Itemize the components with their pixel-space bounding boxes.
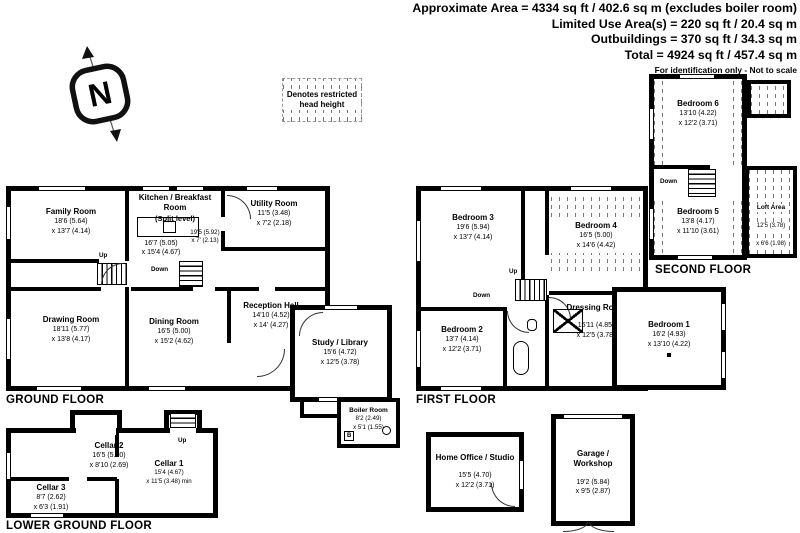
room-bedroom-4: Bedroom 4 16'5 (5.00) x 14'6 (4.42) [551, 221, 641, 250]
wall-segment [11, 287, 101, 291]
room-name: Family Room [21, 207, 121, 217]
door-arc [299, 312, 323, 336]
wall-segment [421, 307, 505, 311]
home-office-plan: Home Office / Studio 15'5 (4.70) x 12'2 … [426, 432, 524, 512]
restricted-height-hatch [551, 253, 641, 271]
restricted-height-hatch [551, 193, 641, 217]
total-area-text: Total = 4924 sq ft / 457.4 sq m [412, 48, 797, 64]
room-dim-1: 19'5 (5.92) [179, 229, 231, 237]
limited-use-area-text: Limited Use Area(s) = 220 sq ft / 20.4 s… [412, 17, 797, 33]
area-summary: Approximate Area = 4334 sq ft / 402.6 sq… [412, 1, 797, 75]
garage-door-arc [589, 522, 614, 532]
room-dim-1: 18'11 (5.77) [21, 325, 121, 334]
room-dim-1: 13'7 (4.14) [423, 335, 501, 344]
room-dim-2: x 14'6 (4.42) [551, 241, 641, 250]
room-dim-2: x 12'2 (3.71) [433, 481, 517, 490]
staircase [688, 169, 716, 197]
window-symbol [678, 255, 712, 260]
wall-join [170, 428, 196, 435]
window-symbol [680, 74, 714, 79]
window-symbol [441, 186, 481, 191]
boiler-tag: B [344, 431, 354, 441]
room-utility: Utility Room 11'5 (3.48) x 7'2 (2.18) [227, 199, 321, 228]
window-symbol [39, 186, 85, 191]
room-dim-1: 15'5 (4.70) [433, 471, 517, 480]
room-name: Cellar 3 [11, 483, 91, 493]
room-home-office-studio: Home Office / Studio 15'5 (4.70) x 12'2 … [433, 453, 517, 490]
room-name: Cellar 2 [63, 441, 155, 451]
window-symbol [6, 207, 11, 239]
room-dim-1: 8'7 (2.62) [11, 493, 91, 502]
room-bedroom-2: Bedroom 2 13'7 (4.14) x 12'2 (3.71) [423, 325, 501, 354]
window-symbol [519, 461, 524, 489]
stairs-down-label: Down [151, 267, 168, 273]
room-dim-2: x 7'2 (2.18) [227, 219, 321, 228]
loft-area-plan: Loft Area 12'5 (3.78) x 6'6 (1.98) [745, 166, 797, 258]
room-name: Utility Room [227, 199, 321, 209]
room-dim-2: x 13'7 (4.14) [427, 233, 519, 242]
room-family-room: Family Room 18'6 (5.64) x 13'7 (4.14) [21, 207, 121, 236]
room-drawing-room: Drawing Room 18'11 (5.77) x 13'8 (4.17) [21, 315, 121, 344]
ground-floor-label: GROUND FLOOR [6, 394, 104, 406]
window-symbol [416, 221, 421, 261]
room-name: Bedroom 6 [656, 99, 740, 109]
second-floor-label: SECOND FLOOR [655, 264, 751, 276]
study-library-plan: Study / Library 15'6 (4.72) x 12'5 (3.78… [290, 305, 392, 402]
restricted-loft-stub [747, 80, 791, 118]
wall-segment [87, 477, 117, 481]
window-symbol [31, 513, 63, 518]
compass-north-icon: N [58, 44, 142, 144]
kitchen-hob [163, 221, 176, 233]
room-loft-area: Loft Area 12'5 (3.78) x 6'6 (1.98) [749, 196, 793, 250]
room-dim-1: 11'5 (3.48) [227, 209, 321, 218]
approximate-area-text: Approximate Area = 4334 sq ft / 402.6 sq… [412, 1, 797, 17]
staircase [515, 279, 547, 301]
window-symbol [6, 319, 11, 359]
room-dim-2: x 13'10 (4.22) [623, 340, 715, 349]
bedroom1-plan: Bedroom 1 16'2 (4.93) x 13'10 (4.22) [612, 287, 726, 390]
ground-floor-plan: Up Down Family Room 18'6 (5.64) x 13'7 (… [6, 186, 330, 391]
window-symbol [143, 186, 169, 191]
room-name-line1: Garage / [558, 449, 628, 459]
room-dim-2: x 11'5 (3.48) min [127, 478, 211, 486]
room-dim-2: x 11'10 (3.61) [656, 227, 740, 236]
garage-workshop-plan: Garage / Workshop 19'2 (5.84) x 9'5 (2.8… [551, 414, 635, 526]
wall-segment [11, 477, 69, 481]
window-symbol [571, 186, 611, 191]
room-subname: (Split level) [127, 214, 223, 223]
room-dim-1: 18'6 (5.64) [21, 217, 121, 226]
room-name: Home Office / Studio [433, 453, 517, 463]
room-name: Boiler Room [341, 407, 396, 415]
room-name-line2: Workshop [558, 459, 628, 469]
boiler-circle-icon [382, 426, 391, 435]
spacer [558, 470, 628, 478]
stairs-down-label: Down [660, 179, 677, 185]
wall-segment [275, 287, 325, 291]
room-study-library: Study / Library 15'6 (4.72) x 12'5 (3.78… [297, 338, 383, 367]
wall-segment [503, 307, 507, 386]
bathtub [513, 341, 529, 375]
room-name: Cellar 1 [127, 459, 211, 469]
window-symbol [247, 186, 277, 191]
room-name: Bedroom 3 [427, 213, 519, 223]
room-dim-2: x 12'2 (3.71) [656, 119, 740, 128]
wall-segment [521, 191, 525, 279]
room-dim-1: 19'2 (5.84) [558, 478, 628, 487]
stairs-up-label: Up [178, 438, 186, 444]
garage-door-arc [563, 522, 588, 532]
staircase [179, 261, 203, 287]
room-cellar-1: Cellar 1 15'4 (4.67) x 11'5 (3.48) min [127, 459, 211, 486]
rear-hall-dims: 19'5 (5.92) x 7' (2.13) [179, 229, 231, 246]
room-dim-1: 15'4 (4.67) [127, 469, 211, 477]
room-name: Bedroom 2 [423, 325, 501, 335]
window-symbol [6, 453, 11, 479]
door-arc [257, 349, 285, 377]
window-symbol [649, 209, 654, 239]
room-dim-2: x 15'4 (4.67) [123, 248, 199, 257]
room-garage-workshop: Garage / Workshop 19'2 (5.84) x 9'5 (2.8… [558, 449, 628, 497]
legend-text: Denotes restricted head height [283, 90, 361, 111]
room-name: Bedroom 5 [656, 207, 740, 217]
first-floor-label: FIRST FLOOR [416, 394, 496, 406]
window-symbol [721, 304, 726, 330]
stairs-up-label: Up [509, 269, 517, 275]
window-symbol [721, 352, 726, 378]
wall-segment [131, 287, 193, 291]
room-dim-2: x 6'3 (1.91) [11, 503, 91, 512]
room-dim-1: 12'5 (3.78) [756, 223, 787, 231]
room-dim-2: x 6'6 (1.98) [755, 241, 787, 249]
room-name: Dining Room [131, 317, 217, 327]
wall-segment [11, 259, 99, 263]
room-dining-room: Dining Room 16'5 (5.00) x 15'2 (4.62) [131, 317, 217, 346]
room-dim-1: 8'2 (2.49) [341, 415, 396, 423]
window-symbol [177, 186, 203, 191]
room-name: Bedroom 4 [551, 221, 641, 231]
spacer [433, 463, 517, 471]
window-symbol [325, 305, 357, 310]
room-dim-2: x 15'2 (4.62) [131, 337, 217, 346]
room-name: Study / Library [297, 338, 383, 348]
wall-segment [545, 191, 549, 255]
room-dim-1: 13'8 (4.17) [656, 217, 740, 226]
wall-segment [115, 479, 119, 513]
room-cellar-3: Cellar 3 8'7 (2.62) x 6'3 (1.91) [11, 483, 91, 512]
room-name: Bedroom 1 [623, 320, 715, 330]
room-dim-1: 15'6 (4.72) [297, 348, 383, 357]
room-name: Kitchen / Breakfast Room [127, 193, 223, 214]
window-symbol [149, 386, 185, 391]
wall-join [76, 428, 116, 435]
room-dim-1: 16'5 (5.00) [131, 327, 217, 336]
room-dim-2: x 12'5 (3.78) [297, 358, 383, 367]
room-bedroom-5: Bedroom 5 13'8 (4.17) x 11'10 (3.61) [656, 207, 740, 236]
room-dim-2: x 13'7 (4.14) [21, 227, 121, 236]
second-floor-plan: Down Bedroom 6 13'10 (4.22) x 12'2 (3.71… [649, 74, 747, 260]
stairs-down-label: Down [473, 293, 490, 299]
room-bedroom-6: Bedroom 6 13'10 (4.22) x 12'2 (3.71) [656, 99, 740, 128]
lower-ground-floor-label: LOWER GROUND FLOOR [6, 520, 152, 532]
room-kitchen-breakfast: Kitchen / Breakfast Room (Split level) [127, 193, 223, 223]
room-dim-1: 19'6 (5.94) [427, 223, 519, 232]
window-symbol [441, 386, 481, 391]
room-bedroom-1: Bedroom 1 16'2 (4.93) x 13'10 (4.22) [623, 320, 715, 357]
floorplan-sheet: Approximate Area = 4334 sq ft / 402.6 sq… [0, 0, 800, 533]
restricted-head-height-legend: Denotes restricted head height [282, 78, 362, 122]
room-dim-1: 13'10 (4.22) [656, 109, 740, 118]
room-dim-1: 16'2 (4.93) [623, 330, 715, 339]
outbuildings-area-text: Outbuildings = 370 sq ft / 34.3 sq m [412, 32, 797, 48]
room-dim-2: x 9'5 (2.87) [558, 487, 628, 496]
wall-segment [221, 247, 325, 251]
door-arc [507, 311, 529, 333]
wall-segment [215, 287, 259, 291]
room-name: Drawing Room [21, 315, 121, 325]
window-symbol [37, 386, 81, 391]
window-symbol [416, 331, 421, 367]
window-symbol [564, 414, 622, 419]
room-dim-2: x 7' (2.13) [179, 237, 231, 245]
room-dim-2: x 13'8 (4.17) [21, 335, 121, 344]
boiler-room-plan: Boiler Room 8'2 (2.49) x 5'1 (1.55) B [337, 398, 400, 448]
stairs-up-label: Up [99, 253, 107, 259]
room-dim-2: x 12'2 (3.71) [423, 345, 501, 354]
room-bedroom-3: Bedroom 3 19'6 (5.94) x 13'7 (4.14) [427, 213, 519, 242]
room-dim-1: 16'5 (5.00) [551, 231, 641, 240]
wall-segment [125, 287, 129, 386]
room-name: Loft Area [756, 204, 786, 212]
window-symbol [649, 109, 654, 139]
marker-dot [667, 353, 671, 357]
